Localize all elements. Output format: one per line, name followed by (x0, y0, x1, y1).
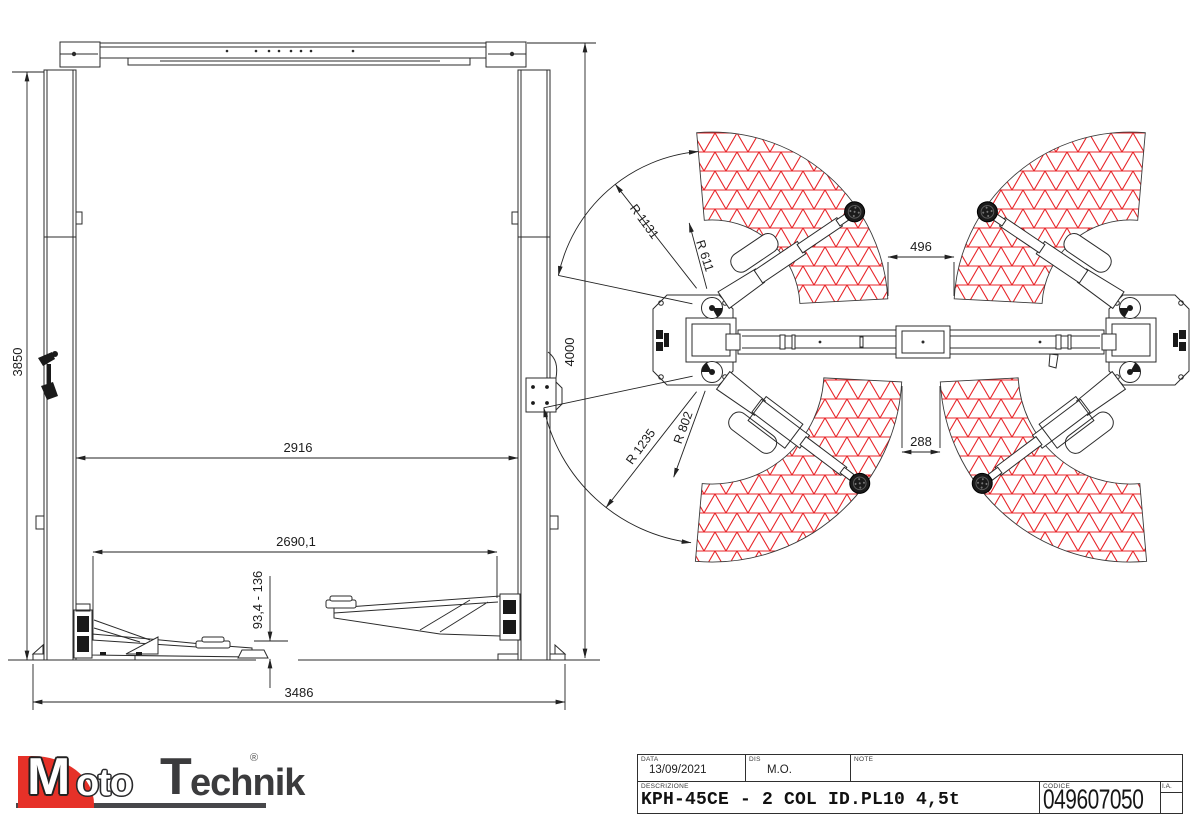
swing-zone-rear-left (695, 378, 901, 562)
top-crossbeam (60, 42, 526, 67)
title-cell-dis: DIS M.O. (746, 755, 851, 781)
title-cell-data: DATA 13/09/2021 (638, 755, 746, 781)
logo-word-oto: oto (76, 761, 132, 805)
dim-base-width: 3486 (285, 685, 314, 700)
dim-r1235: R 1235 (623, 426, 658, 467)
descrizione-label: DESCRIZIONE (641, 783, 1036, 790)
ia-label: I.A. (1161, 782, 1182, 793)
plan-carriage-left (653, 295, 740, 385)
dim-rear-clearance: 288 (910, 434, 932, 449)
plan-carriage-right (1102, 295, 1189, 385)
dim-r611: R 611 (693, 238, 716, 273)
post-right (512, 70, 558, 660)
title-block-row-bottom: DESCRIZIONE KPH-45CE - 2 COL ID.PL10 4,5… (638, 782, 1182, 813)
plan-crossbeam (738, 326, 1104, 368)
dim-arm-span: 2690,1 (276, 534, 316, 549)
title-block: DATA 13/09/2021 DIS M.O. NOTE DESCRIZION… (637, 754, 1183, 814)
title-cell-note: NOTE (851, 755, 1182, 781)
data-label: DATA (641, 756, 742, 763)
front-view: 3850 4000 2916 2690,1 93,4 - 136 3486 (8, 42, 600, 710)
mototechnik-logo: M oto T echnik ® (12, 748, 272, 812)
lift-arm-left (74, 604, 268, 658)
beam-bolt-left (72, 52, 76, 56)
codice-value: 049607050 (1043, 783, 1151, 814)
logo-word-t: T (160, 747, 192, 807)
dim-r1131: R 1131 (627, 202, 662, 242)
logo-word-echnik: echnik (190, 761, 304, 805)
logo-word-m: M (27, 747, 70, 807)
dis-label: DIS (749, 756, 847, 763)
data-value: 13/09/2021 (649, 764, 742, 776)
title-cell-ia: I.A. (1161, 782, 1182, 813)
dis-value: M.O. (767, 764, 847, 776)
dim-inner-width: 2916 (284, 440, 313, 455)
title-block-row-top: DATA 13/09/2021 DIS M.O. NOTE (638, 755, 1182, 782)
title-cell-descrizione: DESCRIZIONE KPH-45CE - 2 COL ID.PL10 4,5… (638, 782, 1040, 813)
registered-trademark-symbol: ® (250, 752, 258, 764)
swing-zone-rear-right (940, 378, 1146, 562)
drawing-sheet: 3850 4000 2916 2690,1 93,4 - 136 3486 (0, 0, 1200, 814)
beam-hook (1049, 354, 1058, 368)
note-label: NOTE (854, 756, 1179, 763)
dim-overall-height: 4000 (562, 338, 577, 367)
dim-front-clearance: 496 (910, 239, 932, 254)
descrizione-value: KPH-45CE - 2 COL ID.PL10 4,5t (641, 790, 1036, 810)
dim-post-height: 3850 (10, 348, 25, 377)
lift-technical-drawing: 3850 4000 2916 2690,1 93,4 - 136 3486 (0, 0, 1200, 814)
top-view: R 1131 R 611 R 1235 R 802 (544, 132, 1189, 562)
beam-bolt-right (510, 52, 514, 56)
lift-arm-right (326, 594, 520, 640)
dim-pad-height-range: 93,4 - 136 (250, 571, 265, 630)
title-cell-codice: CODICE 049607050 (1040, 782, 1161, 813)
